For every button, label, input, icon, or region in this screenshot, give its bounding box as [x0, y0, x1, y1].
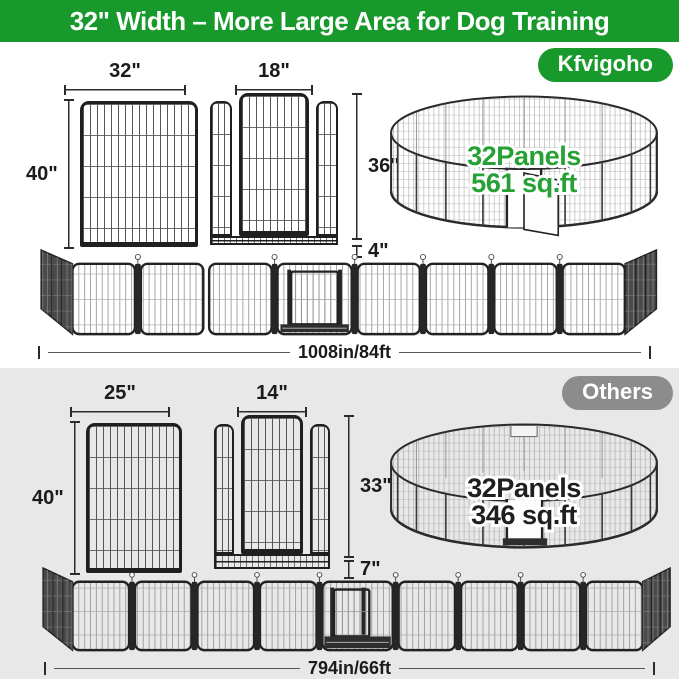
right-side-panel	[310, 424, 330, 554]
dimension-tick	[649, 346, 651, 359]
fence-right-perspective-wing	[643, 568, 670, 650]
others-section: Others 25" 40" 14"	[0, 368, 679, 679]
others-panel-height-label: 40"	[32, 487, 64, 510]
banner-title: 32" Width – More Large Area for Dog Trai…	[70, 6, 610, 37]
width-dimension-line	[64, 85, 186, 95]
others-circular-pen-illustration: 32Panels 346 sq.ft	[378, 410, 670, 582]
pen-door-sill	[503, 538, 547, 545]
kfvigoho-panel-height-label: 40"	[26, 163, 58, 186]
left-side-panel	[210, 101, 232, 236]
others-panel-width-label: 25"	[104, 382, 136, 405]
dimension-tick	[653, 662, 655, 675]
kfvigoho-section: Kfvigoho 32" 40" 18"	[0, 42, 679, 368]
right-side-panel	[316, 101, 338, 236]
others-panel-diagram: 25" 40"	[32, 382, 182, 575]
pen-area-label: 561 sq.ft	[471, 167, 577, 198]
door-bottom-sill	[210, 236, 338, 245]
product-infographic: 32" Width – More Large Area for Dog Trai…	[0, 0, 679, 679]
kfvigoho-fence-dimension: 1008in/84ft	[38, 342, 651, 363]
dimension-line	[399, 668, 645, 670]
kfvigoho-fence-length-label: 1008in/84ft	[298, 342, 391, 363]
dimension-tick	[38, 346, 40, 359]
dimension-line	[54, 668, 300, 670]
fence-right-perspective-wing	[625, 250, 656, 334]
fence-door-panel	[322, 582, 392, 650]
kfvigoho-panel-diagram: 32" 40"	[26, 60, 198, 249]
door-height-dimension-line	[352, 93, 362, 240]
others-fence-dimension: 794in/66ft	[44, 658, 655, 679]
kfvigoho-door-width-label: 18"	[258, 60, 290, 83]
others-fence-length-label: 794in/66ft	[308, 658, 391, 679]
others-fence-row-illustration	[8, 564, 672, 662]
wire-panel-illustration	[86, 423, 182, 573]
others-door-width-label: 14"	[256, 382, 288, 405]
door-panel-illustration	[241, 415, 303, 554]
fence-door-panel	[278, 264, 352, 334]
width-dimension-line	[70, 407, 170, 417]
fence-hinge-knobs	[135, 254, 562, 263]
kfvigoho-fence-row-illustration	[8, 248, 672, 346]
dimension-line	[48, 352, 290, 354]
fence-hinge-knobs	[130, 573, 586, 582]
dimension-line	[399, 352, 641, 354]
others-brand-badge: Others	[562, 376, 673, 410]
left-side-panel	[214, 424, 234, 554]
dimension-tick	[44, 662, 46, 675]
kfvigoho-panel-width-label: 32"	[109, 60, 141, 83]
title-banner: 32" Width – More Large Area for Dog Trai…	[0, 0, 679, 42]
pen-area-label: 346 sq.ft	[471, 499, 577, 530]
fence-left-perspective-wing	[43, 568, 72, 650]
fence-left-perspective-wing	[41, 250, 72, 334]
pen-back-gap	[511, 426, 537, 437]
kfvigoho-brand-badge: Kfvigoho	[538, 48, 673, 82]
kfvigoho-circular-pen-illustration: 32Panels 561 sq.ft	[378, 82, 670, 254]
door-height-dimension-line	[344, 415, 354, 558]
height-dimension-line	[64, 99, 74, 249]
wire-panel-illustration	[80, 101, 198, 247]
door-panel-illustration	[239, 93, 309, 236]
height-dimension-line	[70, 421, 80, 575]
